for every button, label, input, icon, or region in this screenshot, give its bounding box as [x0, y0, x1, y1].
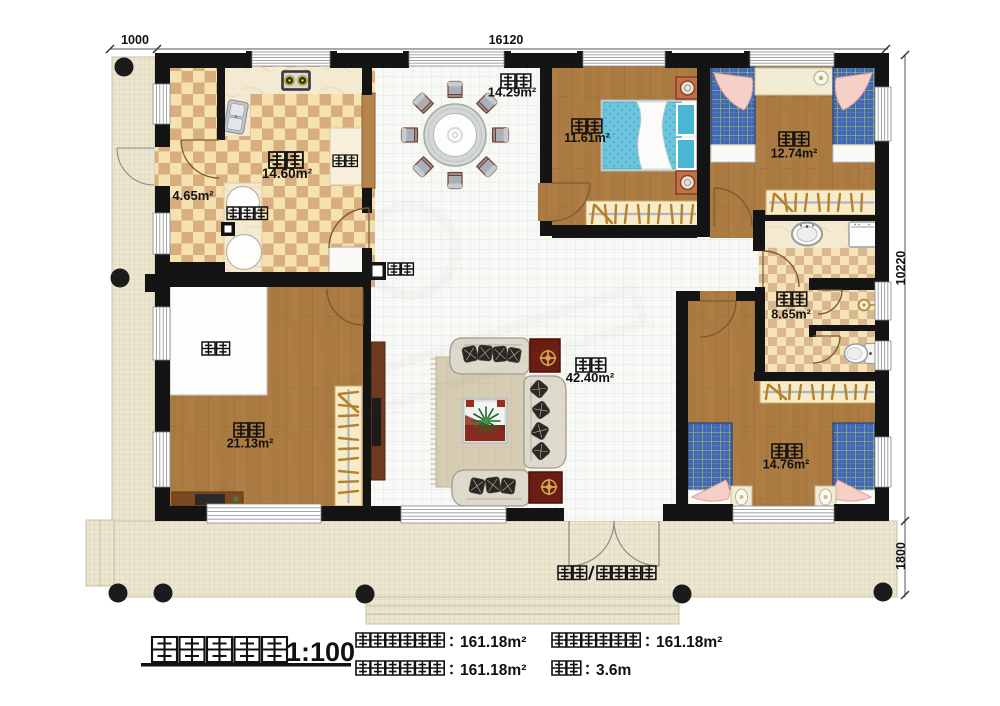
svg-text:14.76m²: 14.76m² [763, 458, 810, 472]
svg-text:161.18m²: 161.18m² [460, 662, 526, 679]
svg-text:1800: 1800 [894, 542, 908, 570]
svg-text:42.40m²: 42.40m² [566, 370, 615, 385]
svg-text:11.61m²: 11.61m² [564, 131, 610, 145]
svg-text:1000: 1000 [121, 33, 149, 47]
svg-text:21.13m²: 21.13m² [227, 437, 274, 451]
svg-text:161.18m²: 161.18m² [656, 634, 722, 651]
svg-text:3.6m: 3.6m [596, 662, 631, 679]
svg-text:14.60m²: 14.60m² [262, 166, 313, 181]
svg-text:161.18m²: 161.18m² [460, 634, 526, 651]
svg-text:12.74m²: 12.74m² [771, 147, 818, 161]
svg-text:8.65m²: 8.65m² [771, 308, 811, 322]
svg-text:10220: 10220 [894, 251, 908, 286]
svg-text:4.65m²: 4.65m² [172, 188, 214, 203]
svg-text:16120: 16120 [489, 33, 524, 47]
svg-text:14.29m²: 14.29m² [488, 85, 537, 100]
svg-text:1:100: 1:100 [286, 637, 355, 667]
